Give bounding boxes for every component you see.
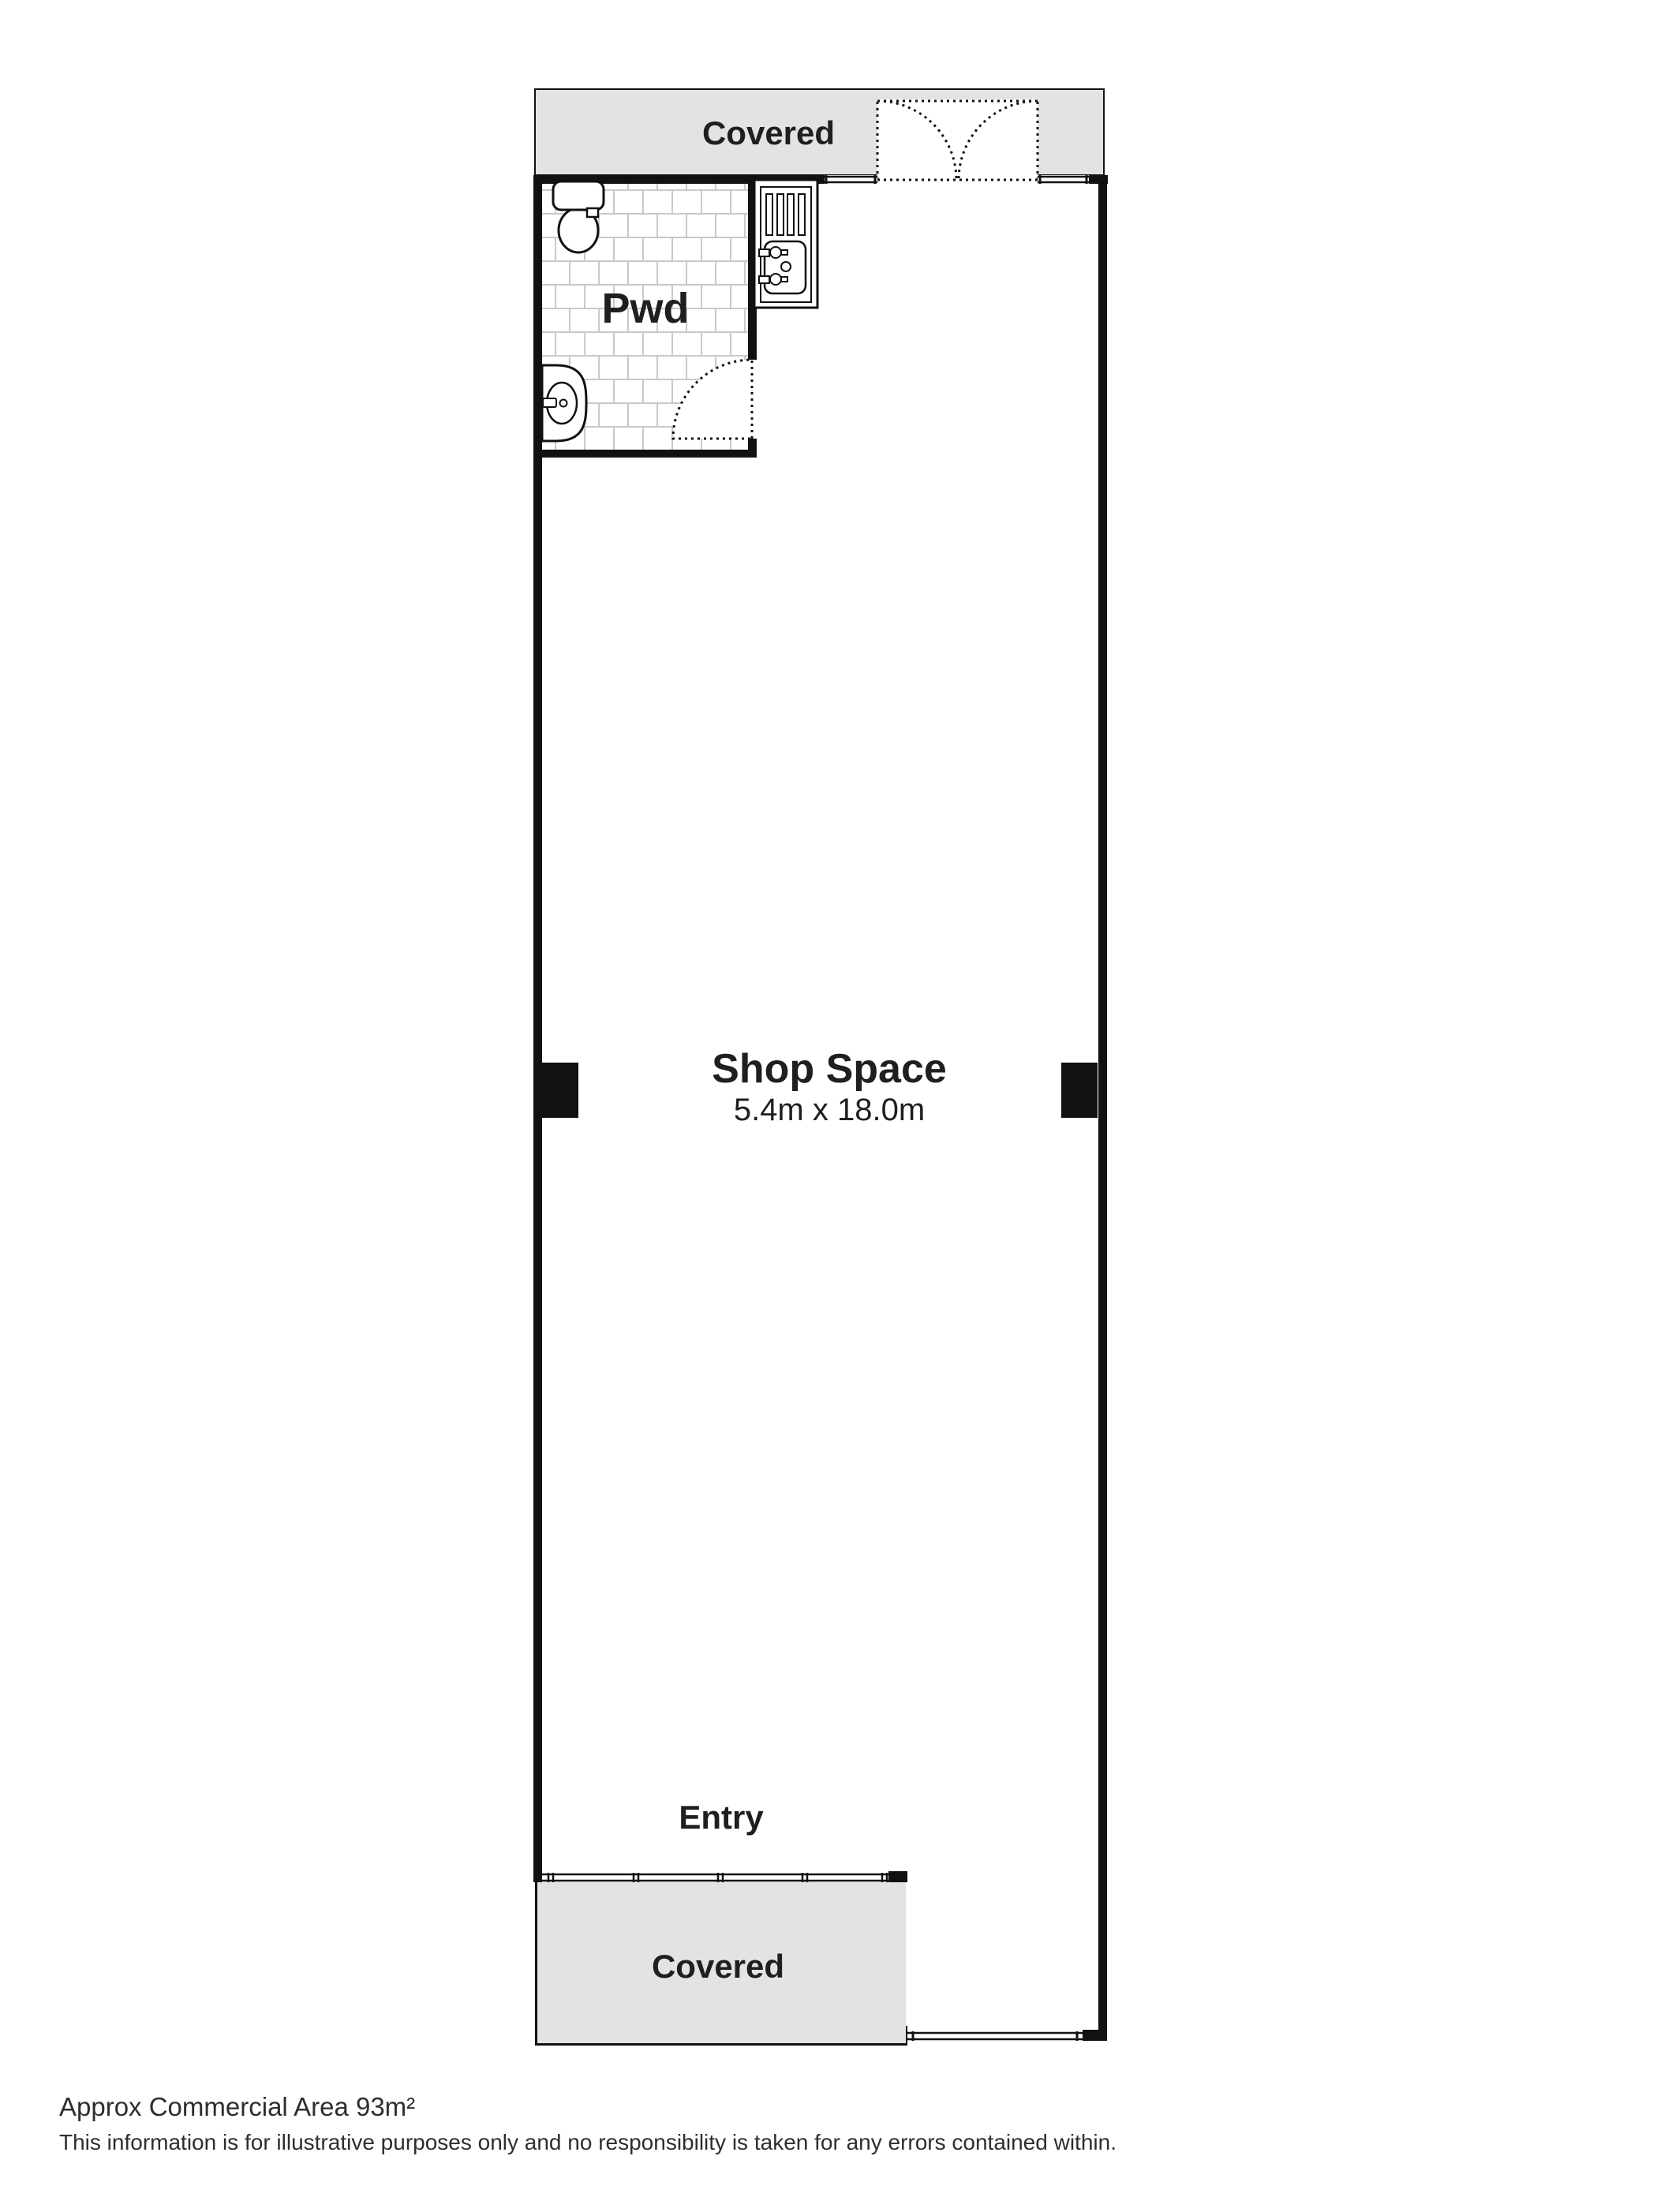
sink-unit-icon — [754, 180, 817, 308]
right-wall — [1098, 175, 1107, 2041]
pillar-right — [1061, 1063, 1098, 1118]
shop-space-dimensions: 5.4m x 18.0m — [734, 1093, 925, 1127]
pillar-left — [542, 1063, 578, 1118]
top-window-left — [825, 175, 877, 184]
approx-area-text: Approx Commercial Area 93m² — [59, 2092, 415, 2122]
double-door-opening — [877, 99, 1038, 184]
covered-top-label: Covered — [702, 114, 835, 151]
drain-icon — [781, 262, 791, 271]
sliding-door — [542, 1873, 888, 1882]
bottom-window — [907, 2031, 1083, 2041]
left-wall — [533, 175, 542, 1882]
basin-icon — [542, 365, 586, 441]
slider-end-block — [888, 1871, 907, 1882]
double-door — [877, 99, 1038, 184]
entry-label: Entry — [679, 1799, 764, 1836]
disclaimer-text: This information is for illustrative pur… — [59, 2130, 1117, 2155]
bottom-right-corner-block — [1083, 2030, 1106, 2041]
shop-space-label: Shop Space — [712, 1046, 947, 1092]
pwd-label: Pwd — [601, 285, 689, 332]
floorplan-page: Covered Pwd Shop Space 5.4m x 18.0m Entr… — [0, 0, 1657, 2212]
top-window-right — [1038, 175, 1089, 184]
covered-bottom-label: Covered — [652, 1948, 784, 1985]
floor-plan: Covered Pwd Shop Space 5.4m x 18.0m Entr… — [0, 0, 1657, 2212]
